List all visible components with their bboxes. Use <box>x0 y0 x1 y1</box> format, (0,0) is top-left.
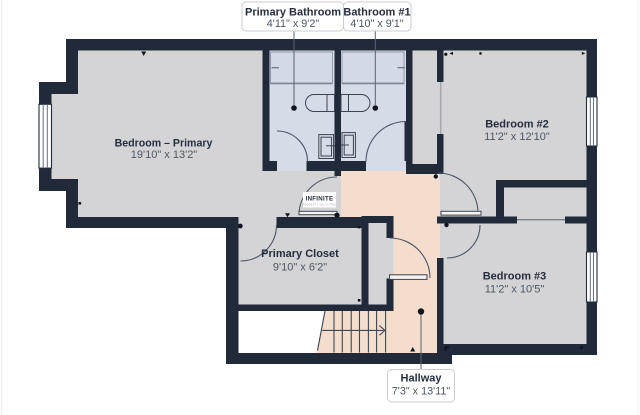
svg-text:PROPERTY SOLUTIONS: PROPERTY SOLUTIONS <box>303 204 337 206</box>
svg-text:Primary Closet: Primary Closet <box>261 248 339 260</box>
svg-text:Bedroom – Primary: Bedroom – Primary <box>115 137 213 149</box>
svg-text:Bedroom #2: Bedroom #2 <box>485 119 549 131</box>
svg-text:9'10" x 6'2": 9'10" x 6'2" <box>273 261 327 273</box>
svg-text:Bathroom #1: Bathroom #1 <box>343 7 410 19</box>
svg-text:Bedroom #3: Bedroom #3 <box>483 270 547 282</box>
svg-text:INFINITE: INFINITE <box>306 196 334 203</box>
svg-text:Primary Bathroom: Primary Bathroom <box>245 7 341 19</box>
svg-text:11'2" x 10'5": 11'2" x 10'5" <box>485 283 545 295</box>
svg-text:Hallway: Hallway <box>401 372 443 384</box>
svg-text:11'2" x 12'10": 11'2" x 12'10" <box>484 131 550 143</box>
svg-text:4'10" x 9'1": 4'10" x 9'1" <box>350 18 403 30</box>
svg-text:4'11" x 9'2": 4'11" x 9'2" <box>267 18 320 30</box>
svg-text:7'3" x 13'11": 7'3" x 13'11" <box>392 385 451 397</box>
svg-text:19'10" x 13'2": 19'10" x 13'2" <box>131 149 198 161</box>
